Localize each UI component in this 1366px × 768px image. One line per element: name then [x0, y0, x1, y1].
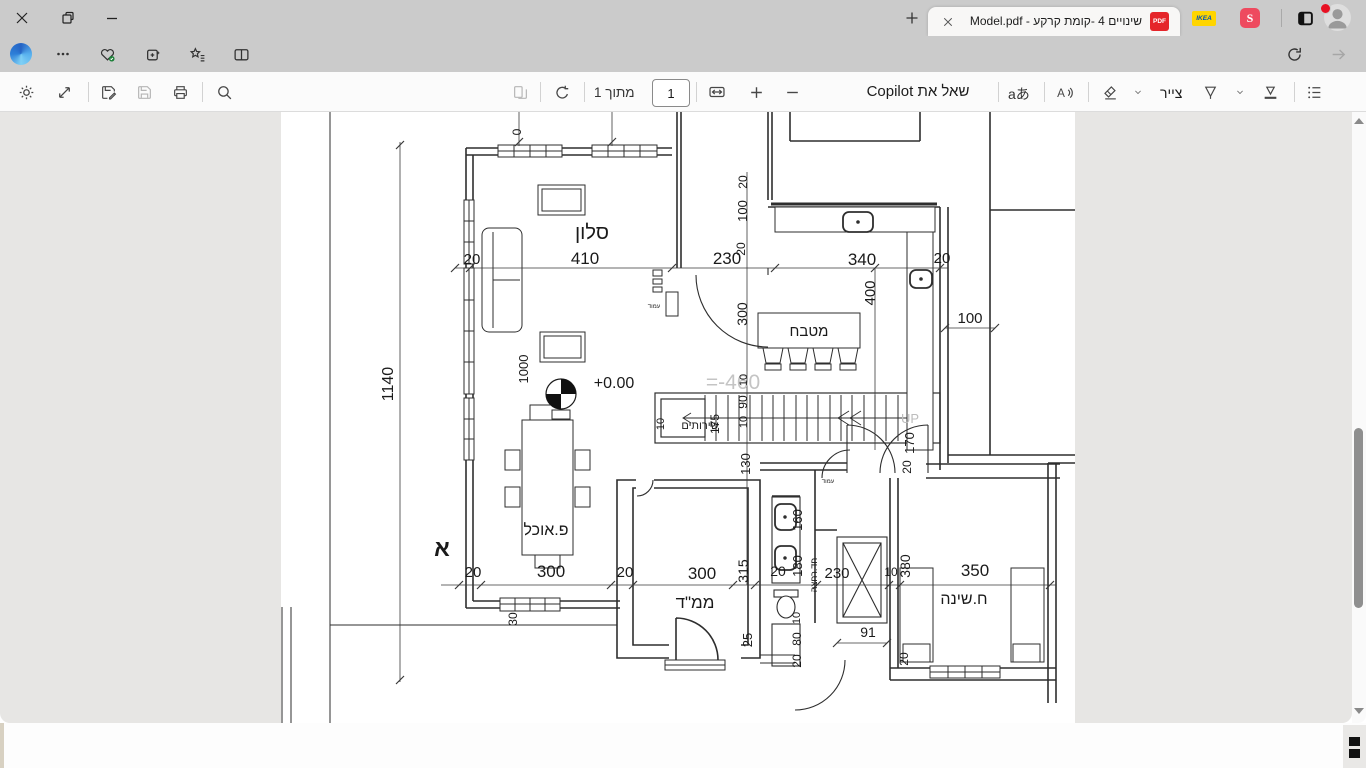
plan-label: 10	[738, 416, 750, 428]
taskbar-icon-slot[interactable]	[1343, 725, 1366, 768]
shopping-heart-icon[interactable]	[96, 46, 118, 62]
plan-label: 130	[738, 453, 753, 475]
plan-label: א	[434, 535, 450, 561]
pinned-tab-ikea-icon[interactable]: IKEA	[1192, 11, 1216, 26]
plan-label: 300	[734, 302, 750, 326]
plan-label: 400	[862, 280, 879, 305]
search-document-icon[interactable]	[212, 83, 236, 101]
save-icon[interactable]	[132, 83, 156, 101]
pen-icon[interactable]	[1198, 83, 1222, 101]
plan-label: 350	[961, 561, 989, 580]
tab-close-icon[interactable]	[940, 14, 956, 30]
plan-label: 10	[738, 374, 750, 386]
tabbar-divider	[1281, 9, 1282, 27]
split-screen-icon[interactable]	[230, 46, 252, 62]
plan-label: 20	[897, 652, 911, 666]
plan-label: 100	[957, 310, 982, 327]
navigation-bar: D:/מוריה%20בן%20גרא/Documents/...הצורות%…	[0, 36, 1366, 72]
toolbar-divider	[540, 82, 541, 102]
toolbar-divider	[696, 82, 697, 102]
toolbar-divider	[998, 82, 999, 102]
plan-label: ממ"ד	[676, 593, 715, 612]
taskbar-app-icon	[1349, 737, 1360, 746]
toolbar-divider	[202, 82, 203, 102]
print-icon[interactable]	[168, 83, 192, 101]
pdf-file-icon: PDF	[1150, 12, 1169, 31]
window-minimize-button[interactable]	[98, 6, 126, 30]
rotate-icon[interactable]	[550, 83, 574, 101]
plan-label: 20	[734, 242, 748, 256]
highlighter-icon[interactable]	[1258, 83, 1282, 101]
eraser-icon[interactable]	[1098, 83, 1122, 101]
toolbar-divider	[1044, 82, 1045, 102]
tab-title: שינויים 4 -קומת קרקע - Model.pdf	[964, 14, 1142, 28]
plan-label: 20	[465, 564, 482, 581]
fullscreen-icon[interactable]	[52, 83, 76, 101]
toolbar-divider	[1088, 82, 1089, 102]
plan-label: 0	[510, 128, 524, 135]
scroll-up-arrow[interactable]	[1354, 118, 1364, 124]
draw-button[interactable]: צייר	[1160, 85, 1182, 101]
tab-bar: שינויים 4 -קומת קרקע - Model.pdf PDF IKE…	[0, 0, 1366, 36]
plan-label: 380	[897, 554, 913, 578]
plan-label: 300	[688, 564, 716, 583]
plan-label: עמוד	[648, 304, 661, 310]
plan-label: 300	[537, 562, 565, 581]
desktop-edge-sliver	[0, 723, 4, 768]
plan-label: 315	[735, 559, 751, 583]
page-number-input[interactable]	[652, 79, 690, 107]
plan-label: 80	[790, 632, 804, 646]
plan-label: 170	[902, 432, 917, 454]
plan-label: פ.אוכל	[524, 521, 569, 539]
toolbar-divider	[584, 82, 585, 102]
tab-actions-button[interactable]	[1292, 6, 1318, 30]
zoom-in-icon[interactable]	[744, 83, 768, 101]
plan-label: 25	[740, 633, 755, 647]
bottom-bar	[0, 723, 1366, 768]
ask-copilot-button[interactable]: שאל את Copilot	[848, 83, 988, 100]
read-aloud-icon[interactable]	[1052, 83, 1076, 101]
zoom-out-icon[interactable]	[780, 83, 804, 101]
contents-list-icon[interactable]	[1302, 83, 1326, 101]
forward-button[interactable]	[1326, 45, 1350, 63]
new-tab-button[interactable]	[898, 6, 926, 30]
plan-label: 230	[824, 565, 849, 582]
plan-label: 91	[860, 624, 876, 640]
plan-label: 1140	[380, 367, 397, 402]
plan-label: +0.00	[594, 375, 635, 392]
pdf-page: סלון4102023034020100114002010020300400מט…	[281, 112, 1075, 723]
settings-gear-icon[interactable]	[14, 83, 38, 101]
refresh-button[interactable]	[1282, 45, 1306, 63]
fit-to-width-icon[interactable]	[704, 83, 730, 101]
active-tab[interactable]: שינויים 4 -קומת קרקע - Model.pdf PDF	[928, 7, 1180, 36]
profile-notification-dot	[1320, 3, 1331, 14]
plan-label: 20	[464, 251, 481, 268]
draw-chevron-icon[interactable]	[1232, 85, 1248, 99]
plan-label: ח.שינה	[940, 591, 987, 608]
browser-window: שינויים 4 -קומת קרקע - Model.pdf PDF IKE…	[0, 0, 1366, 768]
plan-label: 20	[770, 563, 786, 579]
plan-label: 90	[736, 395, 750, 409]
pinned-tab-shufersal-icon[interactable]: S	[1240, 8, 1260, 28]
plan-label: סלון	[575, 222, 609, 244]
plan-label: 100	[735, 200, 750, 222]
plan-label: 20	[617, 564, 634, 581]
plan-label: 410	[571, 249, 599, 268]
scrollbar-thumb[interactable]	[1354, 428, 1363, 608]
plan-label: 20	[900, 460, 914, 474]
window-restore-button[interactable]	[54, 6, 82, 30]
plan-label: 10	[791, 612, 803, 624]
plan-label: 1000	[516, 355, 531, 384]
pdf-viewer-canvas[interactable]: סלון4102023034020100114002010020300400מט…	[0, 112, 1352, 723]
plan-label: 30	[506, 612, 520, 626]
favorites-hub-icon[interactable]	[186, 46, 208, 62]
eraser-chevron-icon[interactable]	[1130, 85, 1146, 99]
pdf-toolbar: מתוך 1 שאל את Copilot aあ צייר	[0, 72, 1366, 112]
save-as-icon[interactable]	[96, 83, 120, 101]
vertical-scrollbar[interactable]	[1352, 112, 1366, 723]
plan-label: מטבח	[790, 323, 829, 340]
translate-icon[interactable]: aあ	[1008, 84, 1030, 104]
window-close-button[interactable]	[8, 6, 36, 30]
more-tools-icon[interactable]	[52, 46, 74, 62]
collections-icon[interactable]	[142, 46, 164, 62]
floor-plan-drawing: סלון4102023034020100114002010020300400מט…	[281, 112, 1075, 723]
plan-label: 10	[655, 418, 667, 430]
page-view-icon[interactable]	[508, 83, 532, 101]
plan-label: 340	[848, 250, 876, 269]
plan-label: 160	[790, 509, 805, 531]
plan-label: חד.רחצה	[809, 558, 819, 593]
plan-label: 20	[736, 175, 750, 189]
taskbar-app-icon	[1349, 749, 1360, 758]
toolbar-divider	[88, 82, 89, 102]
plan-label: UP	[901, 411, 919, 426]
page-count-label: מתוך 1	[594, 85, 646, 100]
scroll-down-arrow[interactable]	[1354, 708, 1364, 714]
plan-label: 175	[708, 414, 722, 434]
plan-label: 10	[884, 565, 898, 579]
plan-label: 180	[790, 555, 805, 577]
plan-label: 20	[934, 250, 951, 267]
copilot-icon[interactable]	[10, 43, 32, 65]
plan-label: =-460	[706, 371, 760, 394]
plan-label: עמוד	[822, 479, 835, 485]
plan-label: 20	[790, 654, 804, 668]
toolbar-divider	[1294, 82, 1295, 102]
